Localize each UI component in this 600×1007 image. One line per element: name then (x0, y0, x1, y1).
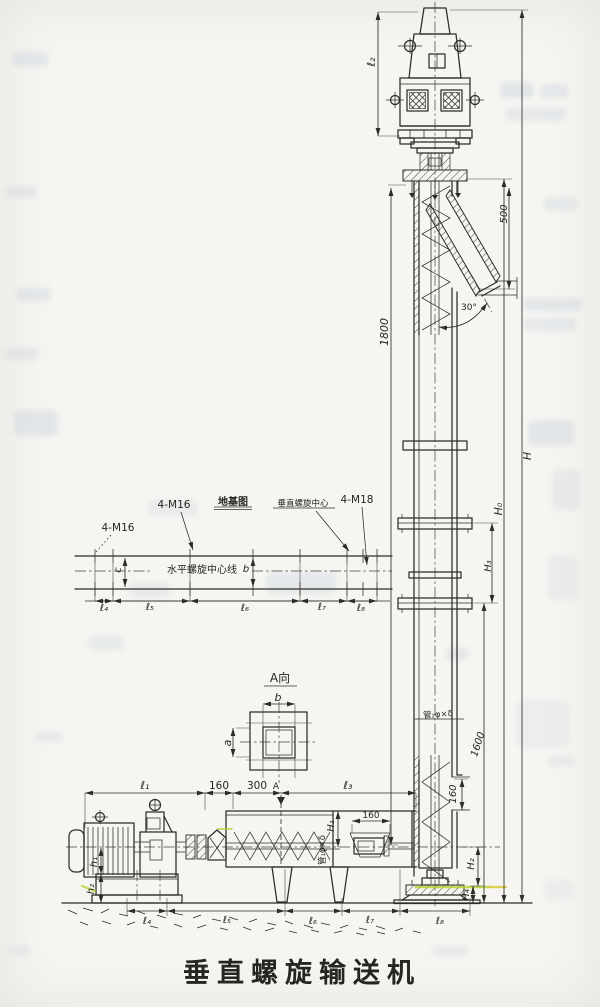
chute-wall-upper (446, 190, 500, 282)
label-elev-l7: ℓ₇ (366, 915, 374, 926)
discharge-chute-section (414, 181, 517, 777)
label-H0: H₀ (492, 502, 505, 515)
label-H: H (521, 452, 534, 460)
label-plan-l5: ℓ₅ (146, 602, 154, 613)
drive-motor-assembly (386, 2, 484, 906)
drive-base-block (92, 870, 182, 903)
shaft-coupling (186, 835, 206, 859)
label-h1: h₁ (89, 857, 100, 867)
label-l3: ℓ₃ (343, 779, 354, 792)
label-pipe2-spec: 管₂φ×δ (423, 708, 454, 721)
label-160-hopper: 160 (362, 811, 379, 821)
label-pipe1-spec: 管₁φ×δ (317, 835, 328, 865)
leader-m16-mid (181, 512, 193, 550)
label-elev-l8: ℓ₈ (436, 916, 444, 927)
label-m18: 4-M18 (341, 494, 374, 506)
electric-motor (69, 810, 150, 877)
drawing-title: 垂直螺旋输送机 (183, 957, 421, 989)
label-1800: 1800 (378, 318, 391, 346)
label-plan-l8: ℓ₈ (357, 603, 365, 614)
ground (62, 903, 532, 935)
label-1600: 1600 (469, 731, 487, 759)
label-plan-l4: ℓ₄ (100, 603, 108, 614)
label-b: b (275, 691, 282, 704)
section-arrow (277, 797, 285, 805)
label-m16-left: 4-M16 (102, 522, 135, 534)
screw-flights-lower (422, 762, 450, 882)
label-l2-top: ℓ₂ (365, 57, 378, 68)
label-b-plan: b (243, 564, 249, 575)
lifting-bolt-right (448, 38, 472, 54)
diagram-svg: ℓ₂ 500 30° 1800 H H₀ H₃ 管₂φ×δ 1600 160 4… (0, 0, 600, 1007)
label-500: 500 (499, 204, 510, 223)
label-H3: H₃ (483, 560, 494, 572)
gearbox-window-left (407, 90, 428, 111)
label-160-top: 160 (209, 780, 229, 792)
label-H2: H₂ (466, 858, 477, 870)
side-bolt-left (386, 92, 404, 108)
label-m16-mid: 4-M16 (158, 499, 191, 511)
label-plan-l7: ℓ₇ (318, 602, 326, 613)
leader-m16-left (96, 535, 111, 552)
column-bottom-assembly (394, 335, 480, 904)
label-300: 300 (247, 780, 267, 792)
label-elev-l5: ℓ₅ (223, 915, 231, 926)
label-vertical-screw-center: 垂直螺旋中心 (277, 498, 329, 509)
label-160-inlet: 160 (448, 784, 459, 803)
label-h2: h₂ (86, 884, 97, 894)
label-elev-l6: ℓ₆ (309, 916, 317, 927)
label-view-a-title: A向 (270, 670, 290, 685)
label-elev-l4: ℓ₄ (143, 916, 151, 927)
lifting-bolt-left (398, 38, 422, 54)
label-H1: H₁ (326, 820, 337, 832)
leader-vertical-center (316, 511, 349, 551)
horizontal-screw (234, 832, 330, 860)
label-30deg: 30° (461, 303, 477, 313)
label-c: c (113, 567, 124, 573)
scanned-drawing-page: ℓ₂ 500 30° 1800 H H₀ H₃ 管₂φ×δ 1600 160 4… (0, 0, 600, 1007)
chute-wall-lower (426, 204, 480, 296)
label-plan-title: 地基图 (218, 495, 248, 508)
label-a: a (221, 739, 234, 746)
gearbox-window-right (441, 90, 462, 111)
label-l1: ℓ₁ (140, 779, 150, 792)
hanger-bearing (208, 830, 226, 860)
label-plan-l6: ℓ₆ (241, 603, 249, 614)
gear-reducer (140, 799, 186, 877)
outer-square (250, 712, 307, 770)
label-marker-A: A (273, 782, 280, 792)
text-labels: ℓ₂ 500 30° 1800 H H₀ H₃ 管₂φ×δ 1600 160 4… (86, 57, 534, 927)
screw-flights-upper (422, 186, 450, 330)
side-bolt-right (466, 92, 484, 108)
rubble-hatch-row2 (80, 921, 385, 935)
label-H4: H₄ (461, 889, 472, 901)
support-legs (272, 867, 348, 902)
label-horizontal-screw-centerline: 水平螺旋中心线 (167, 563, 237, 576)
